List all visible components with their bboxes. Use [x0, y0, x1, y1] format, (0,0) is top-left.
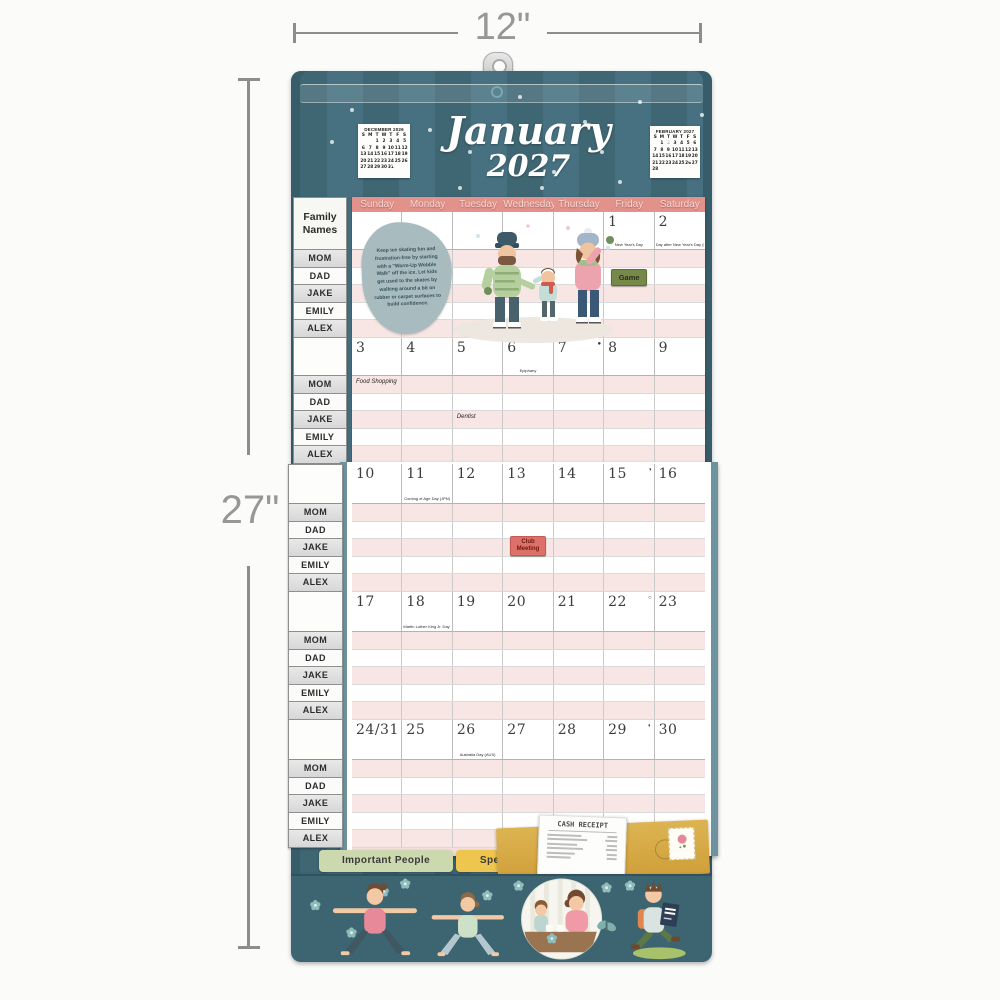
- member-cell: [554, 376, 604, 393]
- mini-calendar-title: FEBRUARY 2027: [652, 129, 698, 134]
- snow-dot: [666, 140, 670, 144]
- date-number: 15: [608, 466, 627, 482]
- date-number: 18: [406, 594, 425, 610]
- member-cell: [453, 522, 503, 539]
- mini-cal-cell: [401, 165, 408, 171]
- width-dimension-cap-left: [293, 23, 296, 43]
- member-cell: [604, 778, 654, 795]
- member-cell: [402, 795, 452, 812]
- member-cell: [554, 557, 604, 574]
- member-cell: [655, 285, 705, 302]
- title-month: January: [406, 111, 651, 151]
- event-sticker: Club Meeting: [510, 536, 546, 556]
- family-names-sidebar-bottom: MOMDADJAKEEMILYALEXMOMDADJAKEEMILYALEXMO…: [288, 464, 343, 848]
- member-cell: [453, 795, 503, 812]
- member-cell: [352, 446, 402, 463]
- member-cell: [503, 376, 553, 393]
- date-cell: 23: [655, 592, 705, 631]
- family-name-tab: DAD: [288, 650, 343, 668]
- mini-cal-cell: 28: [367, 165, 374, 171]
- member-row: [352, 429, 705, 447]
- member-cell: [352, 702, 402, 719]
- member-cell: [453, 429, 503, 446]
- member-cell: [655, 574, 705, 591]
- member-cell: [402, 557, 452, 574]
- date-number: 10: [356, 466, 375, 482]
- date-cell: 4: [402, 338, 452, 375]
- important-people-tab: Important People: [319, 850, 453, 872]
- member-cell: [554, 429, 604, 446]
- member-cell: [352, 557, 402, 574]
- member-cell: [453, 557, 503, 574]
- member-row: [352, 667, 705, 685]
- member-cell: [453, 778, 503, 795]
- member-row: Dentist: [352, 411, 705, 429]
- date-cell: 30: [655, 720, 705, 759]
- date-number: 28: [558, 722, 577, 738]
- member-cell: Game: [604, 268, 654, 285]
- member-cell: [604, 539, 654, 556]
- week-row: 1718Martin Luther King Jr. Day (US)19202…: [352, 592, 705, 720]
- date-cell: 9: [655, 338, 705, 375]
- date-number: 19: [457, 594, 476, 610]
- member-cell: [352, 650, 402, 667]
- date-cell: 10: [352, 464, 402, 503]
- member-cell: [655, 667, 705, 684]
- family-name-tab: DAD: [288, 522, 343, 540]
- weekday-header-row: SundayMondayTuesdayWednesdayThursdayFrid…: [352, 197, 705, 212]
- calendar-product-image: 12" 27" January 2027 DECEMBER 2026 SMTWT…: [0, 0, 1000, 1000]
- member-cell: [402, 574, 452, 591]
- width-dimension-cap-right: [699, 23, 702, 43]
- member-cell: [453, 539, 503, 556]
- date-cell: 28: [554, 720, 604, 759]
- width-dimension-line-left: [295, 32, 458, 34]
- member-cell: [402, 830, 452, 847]
- snow-dot: [618, 180, 622, 184]
- date-number: 24/31: [356, 722, 399, 738]
- member-cell: Club Meeting: [503, 539, 553, 556]
- date-number: 2: [659, 214, 668, 230]
- member-cell: [402, 632, 452, 649]
- date-number: 16: [659, 466, 678, 482]
- member-cell: [352, 795, 402, 812]
- snow-dot: [540, 186, 544, 190]
- width-dimension-label: 12": [455, 8, 550, 46]
- family-name-tab: JAKE: [288, 539, 343, 557]
- member-cell: [503, 795, 553, 812]
- snow-dot: [700, 113, 704, 117]
- date-number: 9: [659, 340, 668, 356]
- member-cell: [604, 446, 654, 463]
- member-cell: [453, 650, 503, 667]
- member-cell: [655, 320, 705, 337]
- tip-note-text: Keep ice skating fun and frustration-fre…: [361, 235, 454, 320]
- family-name-tab: EMILY: [288, 557, 343, 575]
- moon-phase-icon: ◑: [648, 467, 652, 473]
- member-cell: [402, 813, 452, 830]
- member-cell: Dentist: [453, 411, 503, 428]
- member-cell: [402, 429, 452, 446]
- member-cell: [352, 411, 402, 428]
- member-cell: [453, 504, 503, 521]
- date-number: 27: [507, 722, 526, 738]
- member-cell: [352, 522, 402, 539]
- member-cell: [352, 760, 402, 777]
- member-row: [352, 760, 705, 778]
- weekday-header: Monday: [402, 197, 452, 212]
- date-number: 23: [659, 594, 678, 610]
- member-cell: [402, 522, 452, 539]
- member-cell: [655, 632, 705, 649]
- member-cell: [503, 632, 553, 649]
- week-row: 1011Coming of Age Day (JPN)12131415◑16Cl…: [352, 464, 705, 592]
- family-name-tab: MOM: [288, 760, 343, 778]
- member-cell: [402, 778, 452, 795]
- member-cell: [655, 522, 705, 539]
- member-cell: [554, 685, 604, 702]
- snow-dot: [688, 158, 692, 162]
- family-name-tab: ALEX: [288, 830, 343, 848]
- member-cell: [453, 702, 503, 719]
- member-cell: [503, 702, 553, 719]
- member-cell: [503, 429, 553, 446]
- member-cell: Food Shopping: [352, 376, 402, 393]
- member-cell: [554, 667, 604, 684]
- date-cell: 17: [352, 592, 402, 631]
- snow-dot: [638, 100, 642, 104]
- height-dimension-line-upper: [247, 80, 250, 455]
- member-row: [352, 504, 705, 522]
- title-year: 2027: [406, 151, 651, 183]
- date-cell: 15◑: [604, 464, 654, 503]
- holiday-label: Epiphany: [504, 368, 551, 373]
- mini-calendar-prev-month: DECEMBER 2026 SMTWTFS1234567891011121314…: [358, 124, 410, 178]
- member-cell: [453, 667, 503, 684]
- snow-dot: [350, 108, 354, 112]
- member-cell: [554, 760, 604, 777]
- holiday-label: Australia Day (AUS): [454, 752, 501, 757]
- snow-dot: [583, 120, 587, 124]
- snow-dot: [458, 186, 462, 190]
- date-cell: 12: [453, 464, 503, 503]
- member-cell: [402, 394, 452, 411]
- member-cell: [503, 667, 553, 684]
- date-number: 25: [406, 722, 425, 738]
- member-cell: [402, 376, 452, 393]
- member-cell: [655, 446, 705, 463]
- member-cell: [503, 778, 553, 795]
- rose-icon: [677, 834, 686, 843]
- member-cell: [604, 574, 654, 591]
- event-sticker: Game: [611, 269, 647, 286]
- member-cell: [402, 760, 452, 777]
- member-row: [352, 632, 705, 650]
- member-cell: [402, 539, 452, 556]
- member-cell: [655, 760, 705, 777]
- member-cell: [604, 557, 654, 574]
- mini-calendar-title: DECEMBER 2026: [360, 127, 408, 132]
- date-number: 29: [608, 722, 627, 738]
- weekday-header: Saturday: [655, 197, 705, 212]
- member-cell: [503, 760, 553, 777]
- member-cell: [655, 250, 705, 267]
- member-cell: [554, 574, 604, 591]
- member-cell: [554, 778, 604, 795]
- date-cell: 24/31: [352, 720, 402, 759]
- member-cell: [604, 394, 654, 411]
- member-cell: [554, 702, 604, 719]
- member-cell: [352, 813, 402, 830]
- width-dimension-line-right: [547, 32, 700, 34]
- member-cell: [453, 574, 503, 591]
- member-cell: [503, 650, 553, 667]
- member-row: [352, 685, 705, 703]
- family-name-tab: EMILY: [293, 303, 347, 321]
- date-number: 20: [507, 594, 526, 610]
- member-cell: [554, 411, 604, 428]
- family-name-tabs-top: MOMDADJAKEEMILYALEXMOMDADJAKEEMILYALEX: [293, 250, 347, 464]
- member-row: [352, 557, 705, 575]
- member-cell: [604, 795, 654, 812]
- family-activities-illustration: [291, 876, 712, 962]
- mini-cal-cell: [691, 167, 698, 173]
- holiday-label: Day after New Year's Day (NZ): [656, 242, 704, 247]
- date-number: 13: [507, 466, 526, 482]
- family-names-header: Family Names: [293, 197, 347, 250]
- date-cell: 25: [402, 720, 452, 759]
- member-cell: [453, 632, 503, 649]
- date-number: 17: [356, 594, 375, 610]
- calendar-title: January 2027: [406, 111, 651, 182]
- mini-calendar-grid: SMTWTFS123456789101112131415161718192021…: [652, 135, 698, 174]
- member-cell: [554, 394, 604, 411]
- family-name-tab: JAKE: [293, 411, 347, 429]
- sidebar-blank: [288, 720, 343, 760]
- member-cell: [352, 504, 402, 521]
- mini-cal-cell: 27: [360, 165, 367, 171]
- member-cell: [503, 411, 553, 428]
- member-cell: [604, 685, 654, 702]
- date-number: 12: [457, 466, 476, 482]
- pocket-band: [291, 874, 712, 962]
- mini-cal-cell: [685, 167, 692, 173]
- snow-dot: [552, 170, 556, 174]
- member-cell: [655, 429, 705, 446]
- member-row: [352, 795, 705, 813]
- family-name-tab: EMILY: [288, 813, 343, 831]
- weekday-header: Wednesday: [503, 197, 553, 212]
- handwritten-entry: Dentist: [457, 414, 476, 420]
- member-cell: [402, 685, 452, 702]
- family-name-tab: EMILY: [293, 429, 347, 447]
- snow-dot: [392, 163, 396, 167]
- date-cell: 19: [453, 592, 503, 631]
- member-cell: [655, 702, 705, 719]
- family-name-tab: JAKE: [293, 285, 347, 303]
- snow-dot: [600, 150, 604, 154]
- member-cell: [655, 795, 705, 812]
- family-name-tab: JAKE: [288, 795, 343, 813]
- date-cell: 27: [503, 720, 553, 759]
- member-cell: [604, 429, 654, 446]
- date-cell: 11Coming of Age Day (JPN): [402, 464, 452, 503]
- member-cell: [352, 685, 402, 702]
- cash-receipt: CASH RECEIPT: [537, 814, 627, 879]
- member-cell: [604, 504, 654, 521]
- member-cell: [402, 667, 452, 684]
- member-cell: [655, 778, 705, 795]
- date-cell: 18Martin Luther King Jr. Day (US): [402, 592, 452, 631]
- receipt-title: CASH RECEIPT: [548, 820, 617, 833]
- member-row: [352, 702, 705, 720]
- member-cell: [655, 411, 705, 428]
- member-cell: [402, 504, 452, 521]
- member-row: Club Meeting: [352, 539, 705, 557]
- date-cell: 22○: [604, 592, 654, 631]
- skating-family-illustration: [448, 218, 618, 348]
- date-cell: 26Australia Day (AUS): [453, 720, 503, 759]
- member-cell: [655, 268, 705, 285]
- member-cell: [352, 778, 402, 795]
- date-number: 26: [457, 722, 476, 738]
- member-cell: [655, 504, 705, 521]
- member-cell: [503, 685, 553, 702]
- member-cell: [453, 685, 503, 702]
- family-name-tab: EMILY: [288, 685, 343, 703]
- member-cell: [503, 574, 553, 591]
- strip-hole-icon: [491, 86, 503, 98]
- date-cell: 29◐: [604, 720, 654, 759]
- member-cell: [554, 795, 604, 812]
- sidebar-blank: [288, 592, 343, 632]
- member-cell: [402, 650, 452, 667]
- weekday-header: Tuesday: [453, 197, 503, 212]
- member-cell: [655, 394, 705, 411]
- member-cell: [503, 557, 553, 574]
- snow-dot: [518, 95, 522, 99]
- member-cell: [554, 522, 604, 539]
- mini-cal-cell: [659, 167, 666, 173]
- member-cell: [655, 376, 705, 393]
- member-cell: [453, 376, 503, 393]
- member-cell: [604, 702, 654, 719]
- family-name-tab: MOM: [288, 632, 343, 650]
- family-name-tab: ALEX: [293, 320, 347, 338]
- family-name-tab: ALEX: [288, 702, 343, 720]
- member-row: Food Shopping: [352, 376, 705, 394]
- holiday-label: Martin Luther King Jr. Day (US): [403, 624, 450, 629]
- snow-dot: [428, 128, 432, 132]
- calendar-bottom-page: 1011Coming of Age Day (JPN)12131415◑16Cl…: [340, 462, 718, 856]
- date-cell: 20: [503, 592, 553, 631]
- member-cell: [453, 813, 503, 830]
- member-cell: [503, 504, 553, 521]
- member-cell: [604, 650, 654, 667]
- member-cell: [453, 446, 503, 463]
- member-cell: [352, 574, 402, 591]
- family-name-tab: ALEX: [293, 446, 347, 464]
- member-cell: [453, 760, 503, 777]
- member-cell: [604, 632, 654, 649]
- family-name-tab: MOM: [293, 376, 347, 394]
- family-name-tab: JAKE: [288, 667, 343, 685]
- weekday-header: Thursday: [554, 197, 604, 212]
- height-dimension-line-lower: [247, 566, 250, 948]
- family-name-tab: MOM: [288, 504, 343, 522]
- member-cell: [352, 539, 402, 556]
- week-row: 3456Epiphany7●89Food ShoppingDentist: [352, 338, 705, 464]
- member-cell: [402, 702, 452, 719]
- snow-dot: [468, 150, 472, 154]
- bottom-weeks-grid: 1011Coming of Age Day (JPN)12131415◑16Cl…: [352, 464, 705, 848]
- member-cell: [554, 632, 604, 649]
- weekday-header: Friday: [604, 197, 654, 212]
- mini-calendar-next-month: FEBRUARY 2027 SMTWTFS1234567891011121314…: [650, 126, 700, 178]
- bottom-page-paper: 1011Coming of Age Day (JPN)12131415◑16Cl…: [347, 462, 711, 856]
- member-cell: [402, 446, 452, 463]
- member-row: [352, 778, 705, 796]
- date-number: 11: [406, 466, 425, 482]
- date-number: 30: [659, 722, 678, 738]
- member-cell: [655, 303, 705, 320]
- member-cell: [604, 376, 654, 393]
- member-row: [352, 574, 705, 592]
- member-cell: [453, 394, 503, 411]
- member-cell: [503, 446, 553, 463]
- member-cell: [554, 539, 604, 556]
- sidebar-blank: [293, 338, 347, 376]
- member-row: [352, 394, 705, 412]
- member-cell: [655, 557, 705, 574]
- member-cell: [503, 394, 553, 411]
- member-cell: [604, 411, 654, 428]
- mini-cal-cell: [672, 167, 679, 173]
- member-cell: [655, 650, 705, 667]
- member-cell: [554, 504, 604, 521]
- date-number: 22: [608, 594, 627, 610]
- family-name-tab: DAD: [288, 778, 343, 796]
- height-dimension-cap-bottom: [238, 946, 260, 949]
- date-cell: 14: [554, 464, 604, 503]
- holiday-label: Coming of Age Day (JPN): [403, 496, 450, 501]
- date-number: 3: [356, 340, 365, 356]
- snow-dot: [330, 140, 334, 144]
- date-number: 21: [558, 594, 577, 610]
- moon-phase-icon: ◐: [648, 723, 652, 729]
- member-cell: [655, 685, 705, 702]
- date-cell: 2Day after New Year's Day (NZ): [655, 212, 705, 249]
- family-names-sidebar-top: Family Names MOMDADJAKEEMILYALEXMOMDADJA…: [293, 197, 347, 464]
- member-cell: [352, 667, 402, 684]
- member-row: [352, 650, 705, 668]
- member-cell: [655, 539, 705, 556]
- moon-phase-icon: ○: [648, 595, 652, 601]
- date-cell: 13: [503, 464, 553, 503]
- postage-stamp: [668, 827, 695, 860]
- weekday-header: Sunday: [352, 197, 402, 212]
- member-cell: [352, 429, 402, 446]
- mini-calendar-grid: SMTWTFS123456789101112131415161718192021…: [360, 133, 408, 172]
- mini-cal-cell: 30: [381, 165, 388, 171]
- date-number: 4: [406, 340, 415, 356]
- member-cell: [554, 446, 604, 463]
- member-cell: [604, 760, 654, 777]
- member-cell: [352, 394, 402, 411]
- member-cell: [554, 650, 604, 667]
- family-name-tab: MOM: [293, 250, 347, 268]
- family-name-tab: DAD: [293, 394, 347, 412]
